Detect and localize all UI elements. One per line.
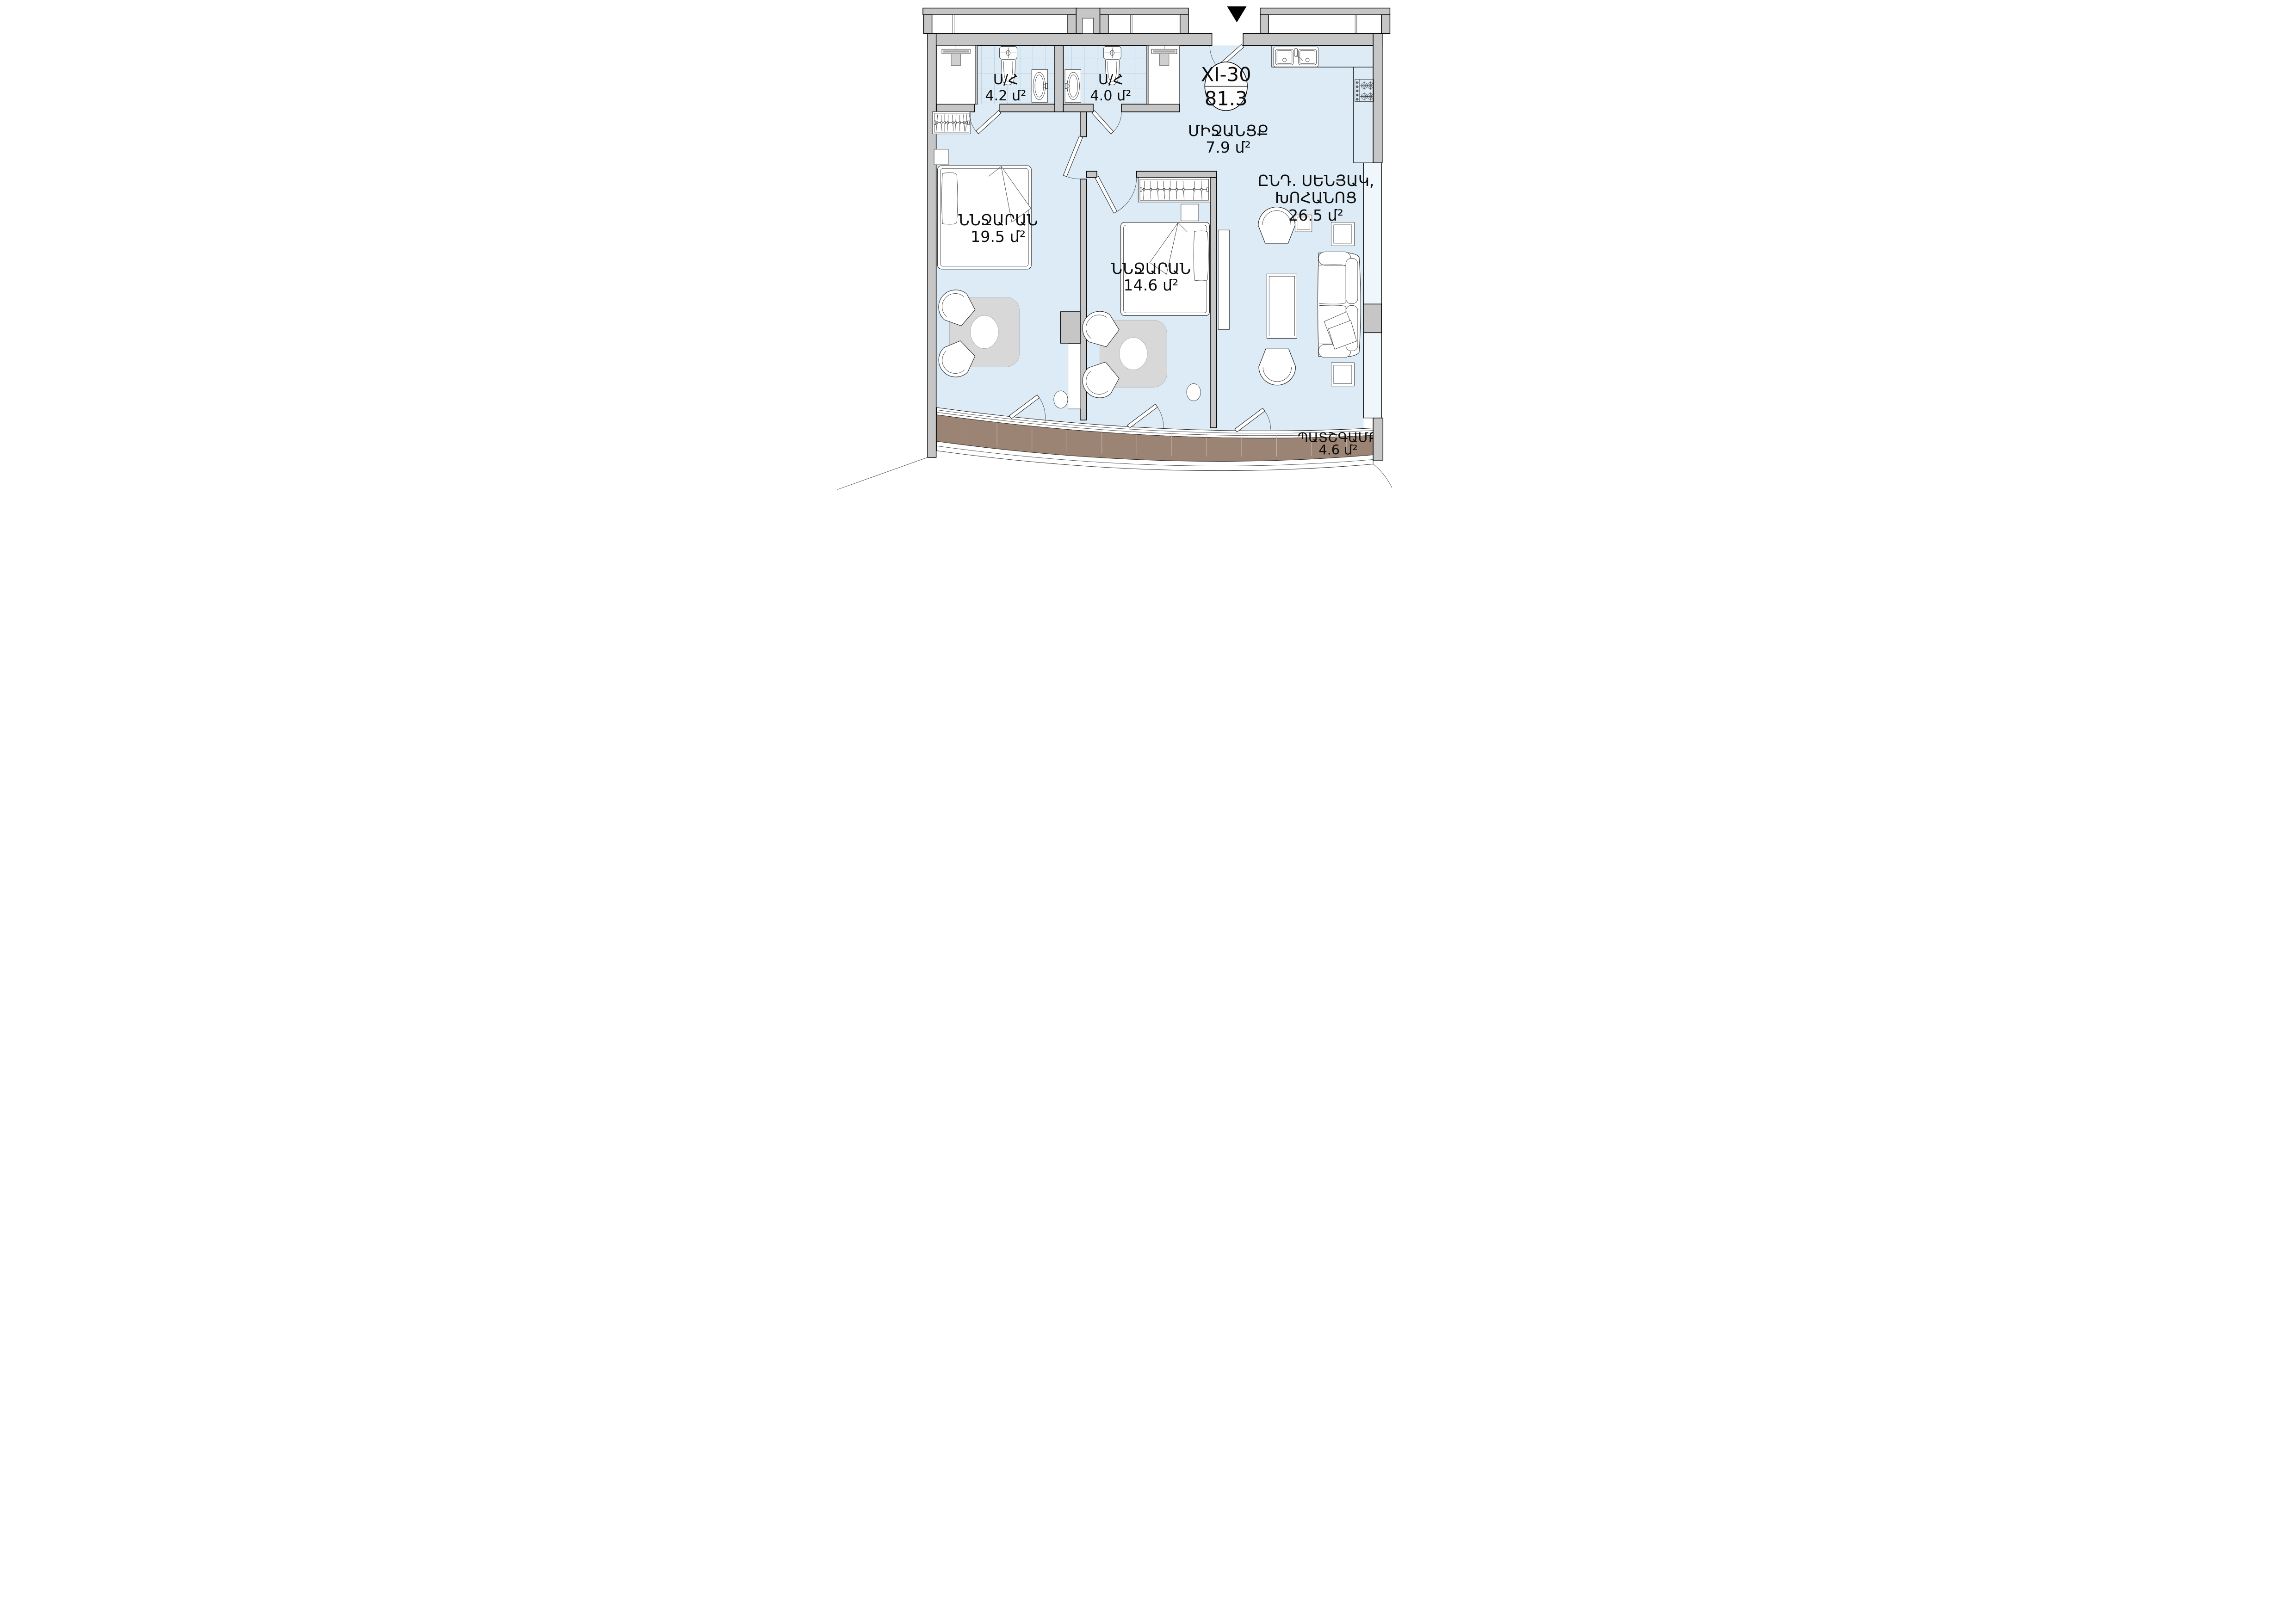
window-column: [1363, 304, 1381, 333]
bedroom-2-east-wall: [1210, 178, 1217, 428]
bathroom-1-label: Ս/Հ: [993, 72, 1018, 88]
entrance-arrow-icon: [1227, 6, 1246, 23]
floor-plan-page: ՊԱՏՇԳԱՄԲ 4.6 մ²: [801, 0, 1495, 491]
bedroom-1-label: ՆՆՋԱՐԱՆ: [958, 211, 1038, 229]
bedroom-2-area: 14.6 մ²: [1123, 276, 1178, 294]
desk: [1068, 344, 1080, 409]
left-wall: [928, 34, 936, 457]
coffee-table: [1267, 274, 1297, 338]
nightstand: [934, 149, 948, 165]
side-table: [1331, 222, 1354, 246]
living-window-band: [1363, 163, 1381, 418]
unit-total-area: 81.3: [1204, 87, 1247, 110]
living-label-line2: ԽՈՀԱՆՈՑ: [1275, 189, 1356, 207]
bathroom-2-label: Ս/Հ: [1098, 72, 1123, 88]
closet: [1138, 178, 1210, 202]
hallway-label: ՄԻՋԱՆՑՔ: [1188, 122, 1268, 140]
bedroom-2-label: ՆՆՋԱՐԱՆ: [1111, 259, 1190, 278]
washbasin: [1065, 70, 1081, 103]
right-wall-bottom: [1373, 418, 1383, 460]
bathroom-1-area: 4.2 մ²: [985, 88, 1026, 104]
floor-plan-drawing: ՊԱՏՇԳԱՄԲ 4.6 մ²: [801, 0, 1495, 491]
sofa: [1318, 252, 1361, 358]
stool: [1053, 391, 1067, 408]
living-area: 26.5 մ²: [1288, 206, 1343, 224]
bathroom-divider-wall: [1054, 45, 1063, 112]
wall-appliance: [1159, 54, 1169, 65]
tv-console: [1218, 230, 1229, 329]
pillow: [941, 173, 958, 224]
bedroom-1-area: 19.5 մ²: [971, 228, 1026, 246]
faucet: [1294, 48, 1297, 56]
kitchen-sink: [1273, 47, 1318, 67]
facade-windows: [922, 8, 1389, 34]
side-table: [1331, 363, 1354, 386]
pillow: [1194, 231, 1208, 281]
wall-appliance: [951, 54, 960, 65]
armchair: [1258, 349, 1295, 385]
right-wall-kitchen: [1373, 34, 1382, 163]
balcony-area: 4.6 մ²: [1318, 442, 1357, 457]
nightstand: [1181, 204, 1198, 221]
bathroom-2-area: 4.0 մ²: [1090, 88, 1131, 104]
bedroom-1-pier: [1060, 312, 1080, 343]
washbasin: [1032, 70, 1047, 103]
unit-label-badge: XI-30 81.3: [1201, 62, 1251, 111]
stool: [1186, 383, 1200, 401]
top-wall-right: [1243, 34, 1382, 46]
top-wall-left: [928, 34, 1212, 46]
unit-number: XI-30: [1201, 63, 1251, 86]
back-cushion: [1346, 259, 1358, 304]
living-label-line1: ԸՆԴ. ՍԵՆՅԱԿ,: [1257, 172, 1374, 190]
wardrobe: [933, 111, 971, 134]
hallway-area: 7.9 մ²: [1206, 138, 1251, 156]
